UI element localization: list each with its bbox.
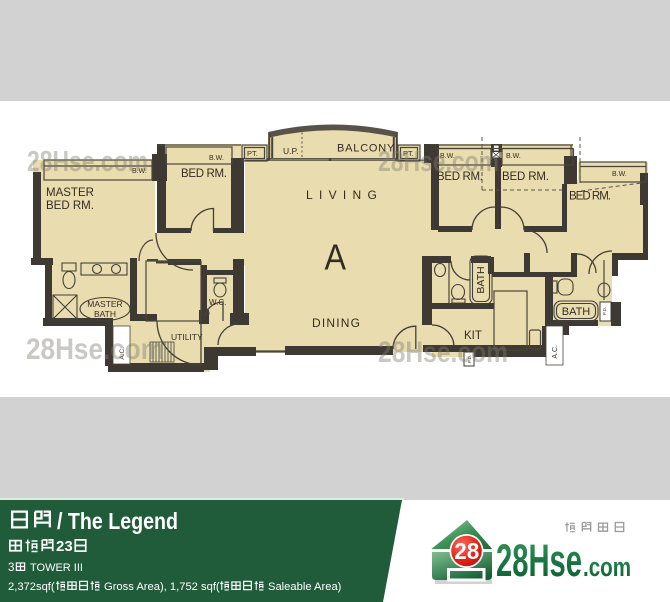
svg-text:BED RM.: BED RM. (181, 168, 227, 180)
svg-text:Saleable Area): Saleable Area) (268, 581, 342, 593)
svg-text:28: 28 (454, 538, 479, 564)
svg-text:B.W.: B.W. (209, 155, 224, 162)
svg-text:U.P.: U.P. (283, 146, 298, 156)
svg-text:DINING: DINING (312, 316, 361, 330)
svg-text:BED RM.: BED RM. (502, 171, 549, 183)
svg-text:BATH: BATH (475, 266, 487, 293)
svg-text:BATH: BATH (562, 306, 591, 318)
svg-text:3: 3 (8, 562, 14, 574)
svg-text:B.W.: B.W. (506, 153, 521, 160)
svg-text:Gross Area), 1,752 sqf(: Gross Area), 1,752 sqf( (104, 581, 220, 593)
svg-text:2,372sqf(: 2,372sqf( (8, 581, 55, 593)
svg-text:.com: .com (583, 552, 631, 582)
svg-text:28Hse.com: 28Hse.com (378, 336, 508, 369)
svg-text:PT.: PT. (247, 149, 258, 158)
svg-text:28Hse.com: 28Hse.com (26, 333, 164, 366)
svg-text:B.W.: B.W. (612, 171, 627, 178)
svg-text:28Hse.com: 28Hse.com (378, 146, 499, 178)
svg-text:UTILITY: UTILITY (171, 332, 203, 342)
svg-text:P.D.: P.D. (602, 307, 607, 315)
svg-text:/ The Legend: / The Legend (57, 508, 178, 534)
svg-text:LIVING: LIVING (306, 188, 383, 202)
svg-text:BED RM.: BED RM. (46, 200, 94, 212)
svg-text:23: 23 (56, 538, 73, 555)
svg-text:MASTER: MASTER (87, 299, 122, 309)
svg-text:A.C.: A.C. (552, 345, 559, 359)
svg-text:28Hse: 28Hse (496, 535, 582, 586)
svg-text:BED RM.: BED RM. (569, 191, 611, 203)
svg-text:W.C.: W.C. (209, 298, 226, 307)
svg-text:MASTER: MASTER (46, 187, 94, 199)
svg-text:BATH: BATH (94, 309, 116, 319)
svg-text:A: A (325, 237, 347, 278)
svg-text:28Hse.com: 28Hse.com (27, 146, 148, 178)
svg-text:TOWER III: TOWER III (30, 562, 83, 574)
